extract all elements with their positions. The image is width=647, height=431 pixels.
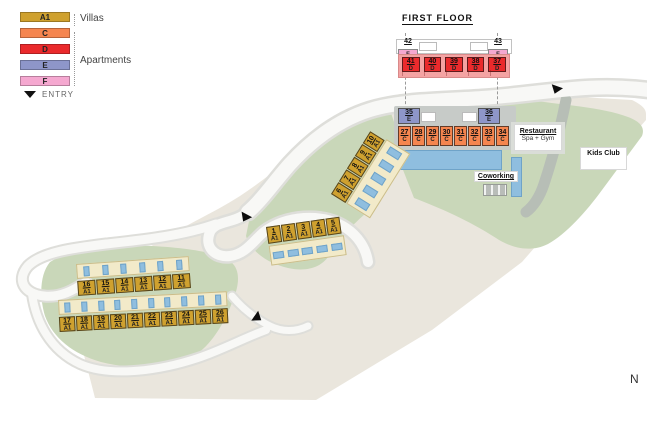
private-pool <box>81 301 88 311</box>
unit-type: A1 <box>80 324 88 330</box>
coworking-label: Coworking <box>474 171 518 182</box>
private-pool <box>164 297 171 307</box>
private-pool <box>139 262 146 272</box>
legend-bracket-villas <box>74 14 75 26</box>
legend-swatch-e: E <box>20 60 70 70</box>
unit-number: 3 <box>301 223 306 230</box>
unit-type: A1 <box>300 231 308 238</box>
unit-number: 29 <box>429 129 437 136</box>
unit-type: C <box>486 137 490 143</box>
legend-swatch-d: D <box>20 44 70 54</box>
legend-swatch-a1: A1 <box>20 12 70 22</box>
unit-type: A1 <box>131 321 139 327</box>
unit-19[interactable]: 19A1 <box>93 314 110 330</box>
unit-12[interactable]: 12A1 <box>153 274 172 290</box>
balcony-dividers <box>402 70 506 76</box>
unit-14[interactable]: 14A1 <box>115 277 134 293</box>
unit-number: 36 <box>485 109 493 116</box>
unit-number: 20 <box>114 314 122 321</box>
unit-number: 11 <box>177 274 185 281</box>
unit-30[interactable]: 30C <box>440 126 453 146</box>
private-pool <box>102 264 109 274</box>
unit-26[interactable]: 26A1 <box>212 308 229 324</box>
private-pool <box>272 250 284 258</box>
private-pool <box>157 260 164 270</box>
private-pool <box>181 296 188 306</box>
private-pool <box>287 248 299 256</box>
private-pool <box>316 244 328 252</box>
unit-number: 18 <box>80 316 88 323</box>
masterplan-canvas: A1 C D E F Villas Apartments ENTRY FIRST… <box>0 0 647 431</box>
unit-number: 26 <box>216 309 224 316</box>
legend-bracket-apartments <box>74 32 75 86</box>
ground-floor-c-row: 27C28C29C30C31C32C33C34C <box>398 126 509 146</box>
unit-24[interactable]: 24A1 <box>178 310 195 326</box>
kids-club-label: Kids Club <box>580 147 627 170</box>
unit-type: A1 <box>102 287 110 294</box>
unit-number: 4 <box>316 221 321 228</box>
unit-2[interactable]: 2A1 <box>281 223 297 242</box>
unit-20[interactable]: 20A1 <box>110 313 127 329</box>
unit-number: 31 <box>457 129 465 136</box>
unit-32[interactable]: 32C <box>468 126 481 146</box>
unit-3[interactable]: 3A1 <box>296 221 312 240</box>
unit-number: 16 <box>82 281 90 289</box>
private-pool <box>148 297 155 307</box>
private-pool <box>370 172 386 186</box>
unit-type: C <box>500 137 504 143</box>
unit-number: 12 <box>158 275 166 283</box>
building-notch <box>419 42 437 51</box>
unit-type: A1 <box>199 318 207 324</box>
coworking-building <box>483 184 507 196</box>
coworking-title: Coworking <box>475 173 517 180</box>
unit-number: 25 <box>199 310 207 317</box>
unit-type: A1 <box>285 233 293 240</box>
unit-28[interactable]: 28C <box>412 126 425 146</box>
private-pool <box>120 263 127 273</box>
unit-type: C <box>430 137 434 143</box>
legend-apartments-label: Apartments <box>80 55 131 66</box>
unit-29[interactable]: 29C <box>426 126 439 146</box>
unit-number: 30 <box>443 129 451 136</box>
unit-type: A1 <box>270 235 278 242</box>
private-pool <box>131 298 138 308</box>
unit-number: 38 <box>472 58 480 65</box>
unit-type: A1 <box>178 282 186 289</box>
restaurant-label: Restaurant Spa + Gym <box>514 124 562 151</box>
unit-type: A1 <box>216 317 224 323</box>
unit-number: 37 <box>493 58 501 65</box>
unit-number: 2 <box>286 225 291 232</box>
private-pool <box>355 197 371 211</box>
unit-type: A1 <box>315 229 323 236</box>
unit-number: 35 <box>405 109 413 116</box>
unit-type: A1 <box>159 283 167 290</box>
unit-type: A1 <box>140 285 148 292</box>
unit-number: 34 <box>499 129 507 136</box>
unit-type: E <box>407 117 411 123</box>
private-pool <box>331 242 343 250</box>
unit-1[interactable]: 1A1 <box>266 225 282 244</box>
main-pool <box>400 150 502 170</box>
north-indicator: N <box>630 372 639 386</box>
first-floor-d-row: 41D40D39D38D37D <box>398 54 510 78</box>
legend-code-c: C <box>42 29 48 38</box>
legend-code-d: D <box>42 45 48 54</box>
unit-5[interactable]: 5A1 <box>325 217 341 236</box>
unit-22[interactable]: 22A1 <box>144 312 161 328</box>
private-pool <box>98 300 105 310</box>
unit-number: 42 <box>404 38 412 45</box>
unit-16[interactable]: 16A1 <box>77 280 96 296</box>
private-pool <box>64 302 71 312</box>
unit-type: A1 <box>114 322 122 328</box>
unit-4[interactable]: 4A1 <box>311 219 327 238</box>
unit-number: 33 <box>485 129 493 136</box>
unit-number: 39 <box>450 58 458 65</box>
unit-number: 32 <box>471 129 479 136</box>
unit-25[interactable]: 25A1 <box>195 309 212 325</box>
unit-type: A1 <box>165 320 173 326</box>
private-pool <box>176 259 183 269</box>
private-pool <box>214 294 221 304</box>
entry-arrow-icon <box>24 91 36 98</box>
unit-number: 13 <box>139 277 147 285</box>
unit-number: 5 <box>331 219 336 226</box>
legend-swatch-f: F <box>20 76 70 86</box>
unit-17[interactable]: 17A1 <box>59 316 76 332</box>
private-pool <box>83 266 90 276</box>
building-notch <box>421 112 436 122</box>
legend-swatch-c: C <box>20 28 70 38</box>
private-pool <box>378 159 394 173</box>
entry-label: ENTRY <box>42 90 74 99</box>
unit-35[interactable]: 35 E <box>398 108 420 124</box>
legend: A1 C D E F Villas Apartments ENTRY <box>20 12 170 92</box>
unit-type: C <box>444 137 448 143</box>
private-pool <box>362 184 378 198</box>
legend-code-f: F <box>43 77 48 86</box>
restaurant-subtitle: Spa + Gym <box>515 135 561 142</box>
unit-27[interactable]: 27C <box>398 126 411 146</box>
unit-type: E <box>487 117 491 123</box>
unit-number: 15 <box>101 279 109 287</box>
unit-type: C <box>402 137 406 143</box>
unit-33[interactable]: 33C <box>482 126 495 146</box>
unit-21[interactable]: 21A1 <box>127 313 144 329</box>
private-pool <box>386 147 402 161</box>
unit-number: 43 <box>494 38 502 45</box>
unit-type: C <box>472 137 476 143</box>
unit-type: A1 <box>148 320 156 326</box>
unit-15[interactable]: 15A1 <box>96 278 115 294</box>
building-notch <box>462 112 477 122</box>
unit-number: 21 <box>131 313 139 320</box>
unit-type: A1 <box>97 323 105 329</box>
unit-31[interactable]: 31C <box>454 126 467 146</box>
unit-23[interactable]: 23A1 <box>161 311 178 327</box>
unit-type: A1 <box>182 319 190 325</box>
kids-club-title: Kids Club <box>581 150 626 157</box>
unit-type: A1 <box>63 325 71 331</box>
first-floor-title: FIRST FLOOR <box>402 13 473 25</box>
private-pool <box>198 295 205 305</box>
unit-18[interactable]: 18A1 <box>76 315 93 331</box>
legend-villas-label: Villas <box>80 13 104 24</box>
unit-number: 40 <box>428 58 436 65</box>
legend-entry: ENTRY <box>24 90 74 99</box>
unit-number: 14 <box>120 278 128 286</box>
unit-number: 41 <box>407 58 415 65</box>
unit-type: C <box>458 137 462 143</box>
legend-code-a1: A1 <box>40 13 50 22</box>
unit-number: 27 <box>401 129 409 136</box>
unit-type: A1 <box>330 227 338 234</box>
unit-34[interactable]: 34C <box>496 126 509 146</box>
unit-type: C <box>416 137 420 143</box>
unit-11[interactable]: 11A1 <box>172 273 191 289</box>
unit-number: 24 <box>182 311 190 318</box>
unit-number: 28 <box>415 129 423 136</box>
private-pool <box>302 246 314 254</box>
unit-36[interactable]: 36 E <box>478 108 500 124</box>
building-notch <box>470 42 488 51</box>
legend-code-e: E <box>42 61 47 70</box>
unit-number: 22 <box>148 312 156 319</box>
unit-type: A1 <box>121 286 129 293</box>
unit-number: 17 <box>63 317 71 324</box>
restaurant-title: Restaurant <box>515 128 561 135</box>
unit-type: A1 <box>83 289 91 296</box>
private-pool <box>114 299 121 309</box>
unit-number: 23 <box>165 312 173 319</box>
unit-number: 1 <box>271 227 276 234</box>
unit-13[interactable]: 13A1 <box>134 276 153 292</box>
unit-number: 19 <box>97 315 105 322</box>
